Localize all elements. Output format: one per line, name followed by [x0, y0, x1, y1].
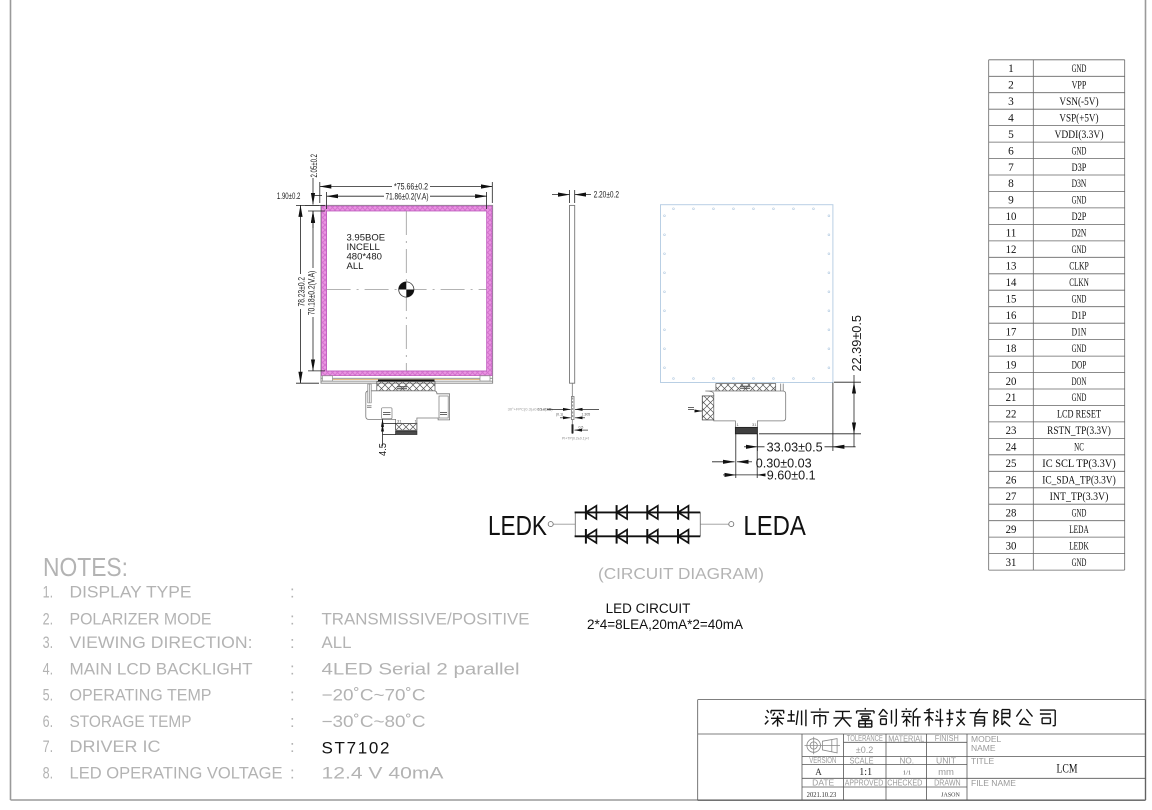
svg-text:1/1: 1/1 — [903, 770, 911, 777]
svg-text:UNIT: UNIT — [936, 756, 956, 765]
svg-text:26: 26 — [1006, 475, 1017, 487]
svg-text:NAME: NAME — [971, 743, 996, 753]
svg-text:LEDK: LEDK — [488, 510, 547, 541]
svg-text:2.20±0.2: 2.20±0.2 — [594, 190, 619, 200]
svg-text:*75.66±0.2: *75.66±0.2 — [394, 181, 428, 191]
svg-text:INT_TP(3.3V): INT_TP(3.3V) — [1050, 491, 1109, 503]
svg-text:D2P: D2P — [1072, 211, 1087, 223]
svg-text:9: 9 — [1008, 195, 1014, 207]
svg-text:TOLERANCE: TOLERANCE — [847, 734, 883, 743]
svg-text:PI+TP(0.2±0.1)×t: PI+TP(0.2±0.1)×t — [562, 437, 589, 441]
svg-text:LEDA: LEDA — [743, 510, 806, 541]
svg-text:6: 6 — [1008, 145, 1014, 157]
svg-text:VSN(-5V): VSN(-5V) — [1059, 96, 1098, 108]
svg-text:FILE NAME: FILE NAME — [971, 778, 1016, 788]
svg-text:0.1±0.05: 0.1±0.05 — [537, 408, 551, 412]
svg-text:5.: 5. — [43, 686, 54, 704]
svg-text:1.: 1. — [43, 584, 54, 602]
svg-text:7.: 7. — [43, 738, 54, 756]
svg-text:(CIRCUIT DIAGRAM): (CIRCUIT DIAGRAM) — [598, 566, 764, 583]
svg-text:70.18±0.2(V.A): 70.18±0.2(V.A) — [307, 271, 317, 316]
svg-text:VIEWING DIRECTION:: VIEWING DIRECTION: — [70, 634, 253, 652]
svg-text::: : — [290, 686, 295, 704]
svg-text::: : — [290, 713, 295, 731]
svg-text:FINISH: FINISH — [935, 734, 959, 743]
svg-text:22.39±0.5: 22.39±0.5 — [849, 315, 864, 372]
svg-text:1:1: 1:1 — [859, 767, 872, 778]
svg-text:71.86±0.2(V.A): 71.86±0.2(V.A) — [386, 192, 429, 202]
svg-text:31: 31 — [1006, 557, 1017, 569]
svg-text:(0.1): (0.1) — [556, 413, 563, 417]
svg-text:78.23±0.2: 78.23±0.2 — [296, 277, 306, 307]
svg-text::: : — [290, 634, 295, 652]
svg-text:2.05±0.2: 2.05±0.2 — [309, 154, 319, 178]
svg-text:−30˚C~80˚C: −30˚C~80˚C — [322, 713, 426, 731]
svg-text:IC SCL TP(3.3V): IC SCL TP(3.3V) — [1042, 458, 1116, 470]
svg-text:D1N: D1N — [1072, 326, 1087, 338]
svg-text:VDDI(3.3V): VDDI(3.3V) — [1055, 129, 1104, 141]
svg-text:18: 18 — [1006, 343, 1017, 355]
svg-text:2*4=8LEA,20mA*2=40mA: 2*4=8LEA,20mA*2=40mA — [587, 617, 743, 632]
svg-text:29: 29 — [1006, 524, 1017, 536]
svg-text:25: 25 — [1006, 458, 1017, 470]
svg-text:17: 17 — [1006, 326, 1017, 338]
svg-text:NO.: NO. — [900, 756, 915, 765]
svg-text:21: 21 — [1006, 392, 1017, 404]
svg-text:RSTN_TP(3.3V): RSTN_TP(3.3V) — [1047, 425, 1111, 437]
svg-text:33.03±0.5: 33.03±0.5 — [767, 439, 823, 454]
svg-text:12.4 V 40mA: 12.4 V 40mA — [322, 765, 444, 783]
svg-text:GND: GND — [1072, 63, 1087, 75]
svg-text:A: A — [815, 767, 822, 777]
svg-text:DRAWN: DRAWN — [934, 778, 961, 787]
svg-text:DRIVER IC: DRIVER IC — [70, 738, 161, 756]
svg-text:ALL: ALL — [322, 634, 352, 652]
svg-text::: : — [290, 765, 295, 783]
svg-text:16: 16 — [1006, 310, 1017, 322]
svg-text:30: 30 — [1006, 540, 1017, 552]
svg-text:APPROVED: APPROVED — [845, 778, 884, 787]
svg-text:GND: GND — [1072, 343, 1087, 355]
svg-text:GND: GND — [1072, 195, 1087, 207]
svg-text:D2N: D2N — [1072, 228, 1087, 240]
svg-text:±0.2: ±0.2 — [856, 745, 873, 755]
svg-text::: : — [290, 584, 295, 602]
svg-text:D1P: D1P — [1072, 310, 1087, 322]
svg-text:GND: GND — [1072, 145, 1087, 157]
svg-text::: : — [290, 611, 295, 629]
svg-text:31: 31 — [397, 418, 402, 423]
svg-text:VPP: VPP — [1072, 80, 1087, 92]
svg-text::: : — [290, 738, 295, 756]
svg-text:3: 3 — [1008, 96, 1014, 108]
svg-text:8: 8 — [1008, 178, 1014, 190]
svg-text:12: 12 — [1006, 244, 1017, 256]
svg-text:22: 22 — [1006, 409, 1017, 421]
svg-text:LCM: LCM — [1057, 762, 1078, 776]
svg-text:IC_SDA_TP(3.3V): IC_SDA_TP(3.3V) — [1042, 475, 1116, 487]
svg-text:1.90±0.2: 1.90±0.2 — [277, 191, 301, 201]
svg-text:OPERATING TEMP: OPERATING TEMP — [70, 686, 212, 704]
svg-text:DATE: DATE — [812, 778, 835, 787]
svg-text:14: 14 — [1006, 277, 1017, 289]
svg-text:SCALE: SCALE — [850, 756, 874, 765]
svg-text:LEDA: LEDA — [1069, 524, 1089, 536]
svg-text:VERSION: VERSION — [809, 756, 836, 765]
svg-text:DISPLAY TYPE: DISPLAY TYPE — [70, 584, 192, 602]
svg-text:15: 15 — [1006, 294, 1017, 306]
svg-text:27: 27 — [1006, 491, 1017, 503]
svg-text:4.: 4. — [43, 660, 54, 678]
svg-text:VSP(+5V): VSP(+5V) — [1059, 112, 1098, 124]
svg-text:D3P: D3P — [1072, 162, 1087, 174]
svg-text:ST7102: ST7102 — [322, 739, 390, 758]
svg-text:CLKN: CLKN — [1069, 277, 1089, 289]
svg-text:10: 10 — [1006, 211, 1017, 223]
svg-text:13: 13 — [1006, 261, 1017, 273]
svg-text:7: 7 — [1008, 162, 1014, 174]
svg-text:4LED Serial 2 parallel: 4LED Serial 2 parallel — [322, 660, 520, 678]
svg-text:3.: 3. — [43, 634, 54, 652]
svg-text:CHECKED: CHECKED — [887, 778, 922, 787]
svg-text:LCD RESET: LCD RESET — [1057, 409, 1101, 421]
svg-text:NOTES:: NOTES: — [43, 552, 128, 582]
svg-text:mm: mm — [938, 767, 954, 778]
svg-text:TRANSMISSIVE/POSITIVE: TRANSMISSIVE/POSITIVE — [322, 611, 530, 629]
svg-text:CLKP: CLKP — [1069, 261, 1089, 273]
svg-text:6.: 6. — [43, 713, 54, 731]
svg-text:JASON: JASON — [941, 793, 960, 799]
svg-text:NC: NC — [1074, 442, 1084, 454]
svg-text:4.5: 4.5 — [377, 443, 389, 456]
svg-text:LEDK: LEDK — [1069, 540, 1089, 552]
svg-text::: : — [290, 660, 295, 678]
svg-text:ALL: ALL — [347, 261, 364, 272]
svg-text:2: 2 — [1008, 80, 1014, 92]
svg-text:DOP: DOP — [1072, 359, 1087, 371]
svg-text:LED OPERATING VOLTAGE: LED OPERATING VOLTAGE — [70, 765, 283, 783]
svg-text:24: 24 — [1006, 442, 1017, 454]
svg-text:2.: 2. — [43, 611, 54, 629]
svg-text:D3N: D3N — [1072, 178, 1087, 190]
svg-text:MATERIAL: MATERIAL — [888, 734, 924, 743]
svg-text:31: 31 — [752, 422, 757, 427]
svg-text:1: 1 — [1008, 63, 1014, 75]
svg-text:LED CIRCUIT: LED CIRCUIT — [606, 601, 691, 616]
svg-text:5: 5 — [1008, 129, 1014, 141]
svg-text:23: 23 — [1006, 425, 1017, 437]
svg-text:1.305: 1.305 — [582, 413, 591, 417]
svg-text:2021.10.23: 2021.10.23 — [807, 791, 837, 799]
svg-text:0.5: 0.5 — [579, 426, 584, 430]
svg-text:DON: DON — [1072, 376, 1087, 388]
svg-text:GND: GND — [1072, 294, 1087, 306]
svg-text:11: 11 — [1006, 228, 1017, 240]
svg-text:GND: GND — [1072, 508, 1087, 520]
svg-text:8.: 8. — [43, 765, 54, 783]
svg-text:GND: GND — [1072, 244, 1087, 256]
svg-text:20: 20 — [1006, 376, 1017, 388]
svg-text:MAIN LCD BACKLIGHT: MAIN LCD BACKLIGHT — [70, 660, 253, 678]
svg-text:GND: GND — [1072, 557, 1087, 569]
svg-text:GND: GND — [1072, 392, 1087, 404]
svg-text:4: 4 — [1008, 112, 1014, 124]
svg-text:−20˚C~70˚C: −20˚C~70˚C — [322, 686, 426, 704]
svg-text:28: 28 — [1006, 508, 1017, 520]
svg-text:STORAGE TEMP: STORAGE TEMP — [70, 713, 192, 731]
svg-text:19: 19 — [1006, 359, 1017, 371]
svg-text:TITLE: TITLE — [971, 756, 994, 766]
svg-text:POLARIZER MODE: POLARIZER MODE — [70, 611, 212, 629]
svg-text:9.60±0.1: 9.60±0.1 — [767, 467, 816, 482]
